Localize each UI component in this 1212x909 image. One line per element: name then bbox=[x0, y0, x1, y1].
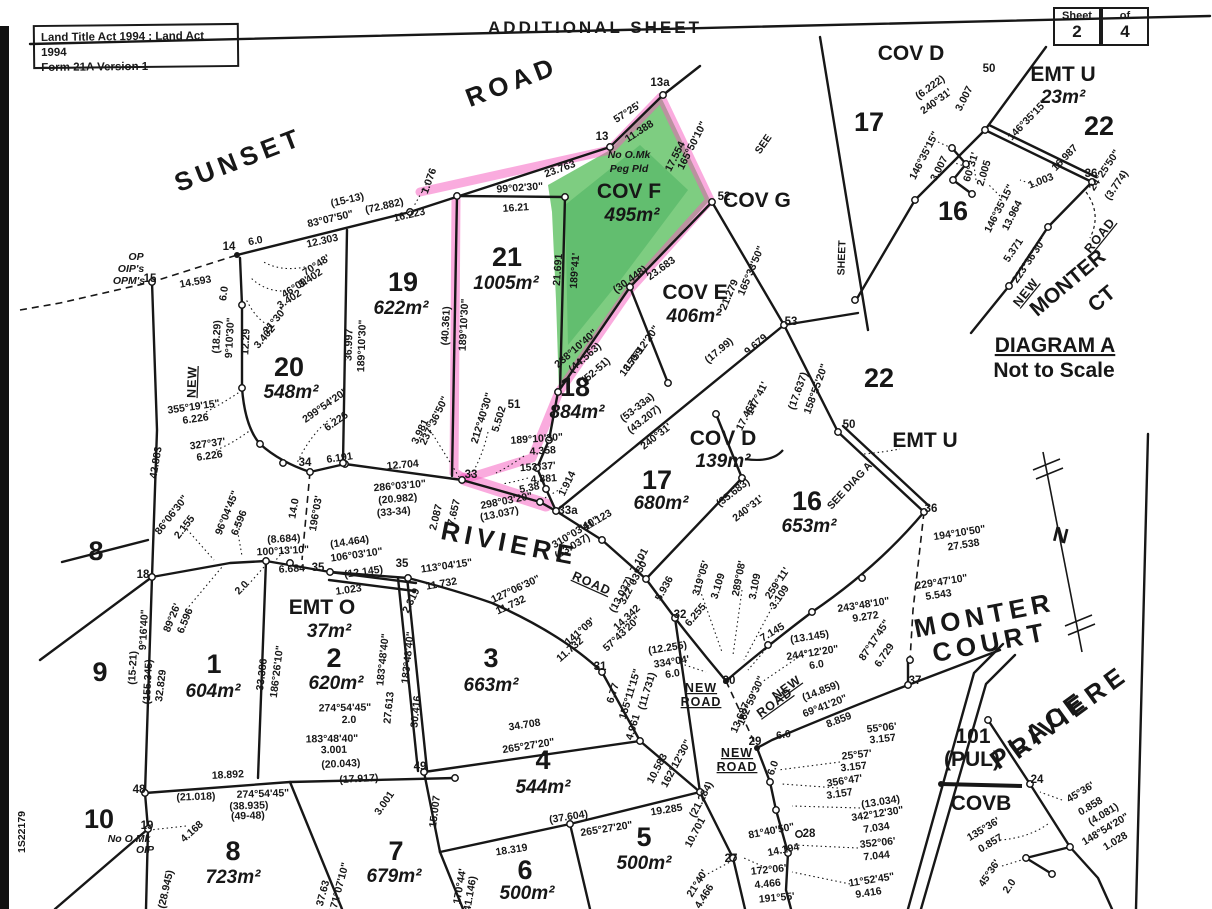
survey-node bbox=[454, 193, 460, 199]
map-label: COVB bbox=[951, 792, 1012, 815]
survey-plan-page: SUNSETROADRIVIEREROADMONTERCOURTRIVIEREP… bbox=[0, 0, 1212, 909]
map-label: 32.829 bbox=[153, 669, 169, 702]
map-label: 3.109 bbox=[709, 572, 728, 601]
map-label: 50 bbox=[843, 419, 856, 431]
survey-node bbox=[637, 738, 643, 744]
map-label: 212°40'30" bbox=[469, 391, 496, 445]
boundary-line bbox=[985, 130, 1092, 182]
map-label: 6.0 bbox=[217, 285, 231, 301]
map-label: COV G bbox=[723, 189, 791, 212]
map-label: (20.043) bbox=[321, 757, 361, 771]
map-label: 352°06' bbox=[859, 835, 896, 851]
map-label: 7 bbox=[388, 836, 403, 866]
map-label: 548m² bbox=[264, 382, 320, 403]
map-label: 544m² bbox=[516, 777, 572, 798]
map-label: 172°06' bbox=[750, 862, 787, 878]
map-label: 49 bbox=[414, 761, 427, 773]
map-label: 7.044 bbox=[863, 849, 891, 864]
map-label: 1.023 bbox=[335, 582, 363, 598]
survey-node bbox=[537, 499, 543, 505]
map-label: 34.708 bbox=[508, 717, 542, 734]
map-label: 12.303 bbox=[305, 232, 339, 251]
map-label: 81°40'50" bbox=[747, 821, 795, 842]
map-label: 495m² bbox=[604, 205, 661, 226]
map-label: 17 bbox=[854, 107, 884, 137]
map-label: 101 bbox=[955, 725, 990, 748]
map-label: 2.0 bbox=[1000, 877, 1018, 896]
map-label: 500m² bbox=[617, 853, 673, 874]
map-label: 19 bbox=[141, 820, 154, 832]
survey-node bbox=[452, 775, 458, 781]
map-label: 319°05' bbox=[690, 559, 712, 597]
map-label: (49-48) bbox=[231, 809, 265, 822]
map-label: (PUL) bbox=[944, 748, 1000, 771]
map-label: OIP bbox=[136, 844, 155, 856]
map-label: 6.0 bbox=[247, 234, 264, 249]
map-label: (13.145) bbox=[789, 628, 830, 646]
boundary-line bbox=[457, 196, 565, 197]
sheet-number: 2 bbox=[1055, 22, 1099, 42]
map-label: ROAD bbox=[681, 695, 722, 709]
survey-node bbox=[263, 558, 269, 564]
sheet-label: Sheet bbox=[1055, 10, 1099, 22]
map-label: 99°02'30" bbox=[496, 180, 543, 195]
map-label: 189°41' bbox=[568, 252, 582, 289]
map-label: 139m² bbox=[696, 451, 752, 472]
boundary-line bbox=[1136, 434, 1148, 909]
map-label: 2.0 bbox=[232, 578, 251, 597]
map-label: 189°10'30" bbox=[355, 319, 369, 372]
map-label: 20 bbox=[274, 352, 304, 382]
map-label: 146°35'15" bbox=[1005, 97, 1050, 143]
survey-node bbox=[239, 385, 245, 391]
map-label: 8.859 bbox=[825, 710, 854, 731]
survey-node bbox=[985, 717, 991, 723]
survey-node bbox=[949, 145, 955, 151]
map-label: EMT U bbox=[892, 429, 957, 452]
map-label: (33-34) bbox=[376, 505, 411, 520]
map-label: 3.001 bbox=[321, 744, 348, 756]
map-label: 27.613 bbox=[381, 691, 396, 724]
survey-node bbox=[660, 92, 666, 98]
map-label: COV D bbox=[878, 42, 945, 65]
survey-node bbox=[307, 469, 313, 475]
map-label: 29 bbox=[749, 736, 762, 748]
map-label: 9.679 bbox=[742, 332, 770, 358]
map-label: 9°10'30" bbox=[223, 317, 237, 358]
survey-node bbox=[796, 831, 802, 837]
map-label: 9°16'40" bbox=[137, 609, 151, 650]
map-label: (17.99) bbox=[702, 335, 735, 366]
map-label: (17.917) bbox=[339, 772, 379, 786]
map-label: 22 bbox=[864, 363, 894, 393]
survey-node bbox=[562, 194, 568, 200]
map-label: 30 bbox=[723, 675, 736, 687]
map-label: 33.386 bbox=[254, 658, 270, 691]
map-label: 604m² bbox=[186, 681, 242, 702]
map-label: 52 bbox=[718, 191, 731, 203]
map-label: 34 bbox=[299, 457, 312, 469]
map-label: (15-21) bbox=[126, 651, 140, 685]
map-label: 16.21 bbox=[502, 201, 529, 215]
map-label: SEE DIAG A bbox=[825, 460, 875, 513]
map-label: 289°08' bbox=[730, 560, 749, 598]
map-label: 183°48'40" bbox=[374, 633, 391, 687]
map-label: 4.358 bbox=[529, 444, 556, 458]
map-label: NEW bbox=[685, 681, 717, 695]
survey-node bbox=[982, 127, 988, 133]
dotted-leader bbox=[248, 567, 264, 585]
survey-node bbox=[852, 297, 858, 303]
map-label: 14.593 bbox=[179, 273, 213, 290]
map-label: 196°03' bbox=[307, 495, 325, 532]
map-label: 5.936 bbox=[653, 574, 676, 603]
map-label: 4.168 bbox=[178, 818, 206, 845]
map-label: 14 bbox=[223, 241, 236, 253]
sheet-number-box: Sheet 2 of 4 bbox=[1053, 7, 1149, 46]
map-label: ROAD bbox=[1082, 215, 1119, 256]
map-label: 5.502 bbox=[490, 405, 509, 434]
map-label: SUNSET bbox=[170, 121, 307, 198]
survey-node bbox=[809, 609, 815, 615]
survey-node bbox=[149, 574, 155, 580]
map-label: 15 bbox=[144, 273, 157, 285]
map-label: 36 bbox=[925, 503, 938, 515]
map-label: 8 bbox=[88, 536, 103, 566]
survey-node bbox=[950, 177, 956, 183]
map-label: SHEET bbox=[835, 240, 848, 276]
survey-node bbox=[969, 191, 975, 197]
map-label: 1.914 bbox=[556, 469, 578, 498]
map-label: 7.145 bbox=[758, 620, 787, 644]
form-version-line: Form 21A Version 1 bbox=[41, 59, 231, 76]
of-number: 4 bbox=[1103, 22, 1147, 42]
covd-leader-arrow bbox=[745, 450, 783, 460]
map-label: ROAD bbox=[570, 569, 613, 598]
dotted-leader bbox=[792, 806, 860, 808]
survey-node bbox=[912, 197, 918, 203]
map-label: N bbox=[1050, 523, 1070, 549]
map-label: 2.0 bbox=[342, 714, 357, 726]
map-label: 6.0 bbox=[808, 658, 824, 672]
survey-node bbox=[713, 411, 719, 417]
sheet-of-cell: of 4 bbox=[1101, 7, 1149, 46]
map-label: COV F bbox=[597, 180, 661, 203]
map-label: (28.945) bbox=[156, 869, 176, 909]
map-label: OPM's bbox=[113, 275, 145, 287]
map-label: 12.29 bbox=[239, 328, 252, 355]
map-label: 884m² bbox=[550, 402, 606, 423]
map-label: 12.704 bbox=[386, 458, 419, 473]
map-label: 6.684 bbox=[278, 562, 305, 575]
map-label: 35 bbox=[396, 558, 409, 570]
survey-node bbox=[665, 380, 671, 386]
map-label: 680m² bbox=[634, 493, 690, 514]
boundary-line bbox=[1026, 847, 1070, 874]
survey-node bbox=[1067, 844, 1073, 850]
dotted-leader bbox=[186, 567, 222, 610]
north-arrow-tick bbox=[1036, 468, 1063, 479]
map-label: CT bbox=[1084, 281, 1120, 317]
map-label: 37 bbox=[909, 675, 922, 687]
map-label: 35 bbox=[312, 562, 325, 574]
map-label: 8 bbox=[225, 836, 240, 866]
sheet-cell: Sheet 2 bbox=[1053, 7, 1101, 46]
map-label: Peg Pld bbox=[610, 163, 649, 175]
map-label: 15.007 bbox=[427, 795, 443, 828]
survey-node bbox=[767, 779, 773, 785]
map-label: 14.194 bbox=[767, 841, 801, 859]
map-label: 3 bbox=[483, 643, 498, 673]
map-label: COV D bbox=[690, 427, 757, 450]
map-label: 24 bbox=[1031, 774, 1044, 786]
map-label: 14.0 bbox=[286, 497, 301, 519]
boundary-line bbox=[62, 540, 148, 562]
map-label: 1S22179 bbox=[16, 811, 28, 853]
map-label: 6.0 bbox=[664, 667, 680, 681]
map-label: 406m² bbox=[666, 306, 723, 327]
map-label: 3.157 bbox=[840, 760, 868, 775]
map-label: NEW bbox=[721, 746, 753, 760]
map-label: 9 bbox=[92, 657, 107, 687]
map-label: 2 bbox=[326, 643, 341, 673]
map-label: 18.892 bbox=[211, 768, 244, 782]
map-label: NEW bbox=[184, 366, 199, 399]
map-label: 33a bbox=[558, 505, 578, 517]
map-label: 17 bbox=[642, 465, 672, 495]
survey-node bbox=[543, 486, 549, 492]
map-label: 31 bbox=[594, 661, 607, 673]
map-label: (20.982) bbox=[378, 491, 418, 506]
map-label: SEE bbox=[753, 132, 775, 156]
survey-plan-canvas: SUNSETROADRIVIEREROADMONTERCOURTRIVIEREP… bbox=[0, 0, 1212, 909]
map-label: 723m² bbox=[206, 867, 262, 888]
north-arrow-tick bbox=[1065, 615, 1092, 626]
map-label: 10.701 bbox=[683, 815, 709, 849]
survey-node bbox=[1006, 283, 1012, 289]
map-label: ROAD bbox=[461, 50, 562, 113]
survey-node bbox=[405, 575, 411, 581]
survey-node bbox=[907, 657, 913, 663]
map-label: 4.466 bbox=[754, 877, 782, 892]
map-label: 18.759 bbox=[617, 346, 646, 379]
map-label: COV E bbox=[662, 281, 727, 304]
survey-node bbox=[1045, 224, 1051, 230]
map-label: 500m² bbox=[500, 883, 556, 904]
map-label: 48 bbox=[133, 784, 146, 796]
north-arrow-tick bbox=[1068, 624, 1095, 635]
map-label: No O.Mk bbox=[608, 149, 652, 161]
form-act-line: Land Title Act 1994 ; Land Act 1994 bbox=[41, 29, 231, 61]
map-label: 37m² bbox=[307, 621, 352, 642]
boundary-line bbox=[145, 282, 157, 909]
dotted-leader bbox=[246, 299, 268, 325]
map-label: (18.29) bbox=[210, 320, 224, 354]
map-label: 679m² bbox=[367, 866, 423, 887]
survey-node bbox=[280, 460, 286, 466]
survey-node bbox=[643, 576, 649, 582]
boundary-line bbox=[941, 784, 1022, 786]
map-label: 21 bbox=[492, 242, 522, 272]
map-label: 6 bbox=[517, 855, 532, 885]
map-label: DIAGRAM A bbox=[995, 334, 1116, 357]
map-label: 1005m² bbox=[473, 273, 539, 294]
map-label: Not to Scale bbox=[993, 359, 1114, 382]
map-label: 6.226 bbox=[196, 448, 224, 464]
map-label: 7.034 bbox=[863, 820, 891, 836]
survey-node bbox=[599, 537, 605, 543]
map-label: 286°03'10" bbox=[373, 478, 426, 495]
map-label: 653m² bbox=[782, 516, 838, 537]
map-label: 6.0 bbox=[775, 728, 791, 742]
dotted-leader bbox=[1000, 824, 1048, 840]
map-label: OP bbox=[128, 251, 144, 263]
dotted-leader bbox=[733, 590, 742, 655]
survey-node bbox=[859, 575, 865, 581]
map-label: 18 bbox=[137, 569, 150, 581]
boundary-line bbox=[40, 577, 152, 660]
map-label: 13a bbox=[650, 77, 670, 89]
map-label: 3.007 bbox=[953, 84, 976, 113]
map-label: 3.001 bbox=[372, 789, 397, 818]
survey-node bbox=[773, 807, 779, 813]
map-label: 50 bbox=[983, 63, 996, 75]
of-label: of bbox=[1103, 10, 1147, 22]
dotted-leader bbox=[150, 826, 186, 830]
map-label: 6.0 bbox=[765, 759, 781, 777]
map-label: 51 bbox=[508, 399, 521, 411]
map-label: 1 bbox=[206, 649, 221, 679]
map-label: 6.226 bbox=[322, 409, 351, 434]
dotted-leader bbox=[988, 184, 1000, 196]
boundary-line bbox=[989, 125, 1096, 177]
survey-node bbox=[709, 199, 715, 205]
boundary-line bbox=[855, 47, 1046, 302]
map-label: 53 bbox=[785, 316, 798, 328]
boundary-line bbox=[820, 37, 868, 330]
map-label: (15-13) bbox=[329, 190, 365, 209]
map-label: 100°13'10" bbox=[256, 544, 309, 559]
dotted-leader bbox=[1040, 792, 1062, 800]
map-label: 3.109 bbox=[747, 572, 764, 600]
map-label: OIP's bbox=[118, 263, 145, 275]
dotted-leader bbox=[794, 845, 858, 848]
dotted-leader bbox=[792, 872, 850, 884]
form-identification-box: Land Title Act 1994 ; Land Act 1994 Form… bbox=[33, 23, 239, 69]
map-label: 16 bbox=[792, 486, 822, 516]
map-label: 45°36' bbox=[976, 858, 1003, 890]
map-label: EMT O bbox=[289, 596, 356, 619]
map-label: EMT U bbox=[1030, 63, 1095, 86]
survey-node bbox=[239, 302, 245, 308]
survey-node bbox=[1023, 855, 1029, 861]
survey-node bbox=[257, 441, 263, 447]
map-label: 19 bbox=[388, 267, 418, 297]
map-label: 620m² bbox=[309, 673, 365, 694]
map-label: 113°04'15" bbox=[420, 556, 473, 575]
map-label: 274°54'45" bbox=[319, 702, 372, 715]
map-label: 3.157 bbox=[869, 732, 897, 747]
survey-node-filled bbox=[938, 781, 944, 787]
map-label: 27 bbox=[725, 853, 738, 865]
map-label: 36.997 bbox=[342, 328, 355, 361]
map-label: PLACE bbox=[984, 684, 1093, 775]
map-label: 1.003 bbox=[1027, 171, 1056, 192]
map-label: 6.255 bbox=[683, 601, 709, 629]
map-label: 28 bbox=[803, 828, 816, 840]
map-label: 33 bbox=[465, 469, 478, 481]
map-label: 265°27'20" bbox=[580, 819, 634, 839]
survey-node bbox=[1049, 871, 1055, 877]
map-label: 5 bbox=[636, 822, 651, 852]
map-label: 10 bbox=[84, 804, 114, 834]
map-label: (40.361) bbox=[439, 306, 453, 346]
map-label: 189°10'30" bbox=[457, 298, 472, 351]
map-label: 42.883 bbox=[147, 445, 164, 479]
survey-node bbox=[327, 569, 333, 575]
map-label: (21.018) bbox=[176, 790, 216, 803]
map-label: ROAD bbox=[717, 760, 758, 774]
survey-node bbox=[835, 429, 841, 435]
map-label: 186°26'10" bbox=[268, 645, 286, 699]
map-label: 22 bbox=[1084, 111, 1114, 141]
page-title: ADDITIONAL SHEET bbox=[430, 18, 760, 38]
map-label: 663m² bbox=[464, 675, 520, 696]
map-label: 16 bbox=[938, 196, 968, 226]
map-label: 21.691 bbox=[551, 253, 565, 286]
dotted-leader bbox=[778, 762, 840, 770]
scan-edge-bar bbox=[0, 26, 9, 909]
dotted-leader bbox=[262, 261, 305, 269]
map-label: 183°48'40" bbox=[399, 631, 416, 685]
map-label: 622m² bbox=[374, 298, 430, 319]
map-label: 13 bbox=[596, 131, 609, 143]
map-label: 6.226 bbox=[182, 411, 210, 427]
